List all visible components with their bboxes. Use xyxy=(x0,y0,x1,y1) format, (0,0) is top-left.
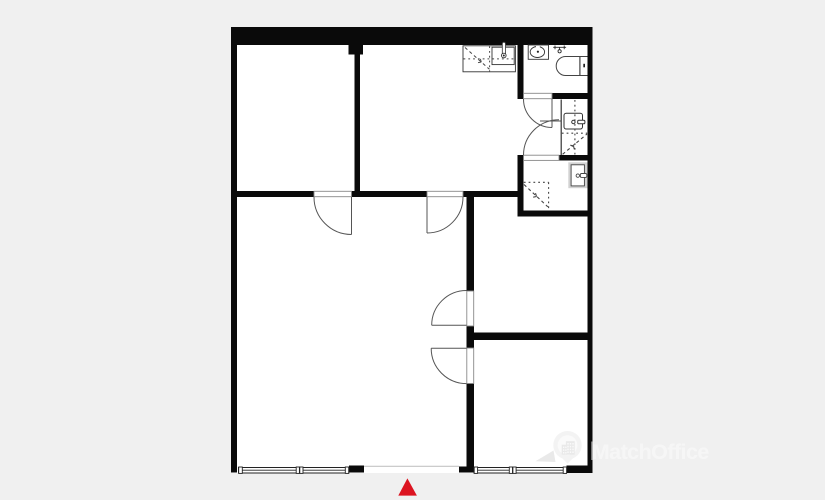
svg-text:MatchOffice: MatchOffice xyxy=(592,440,710,464)
